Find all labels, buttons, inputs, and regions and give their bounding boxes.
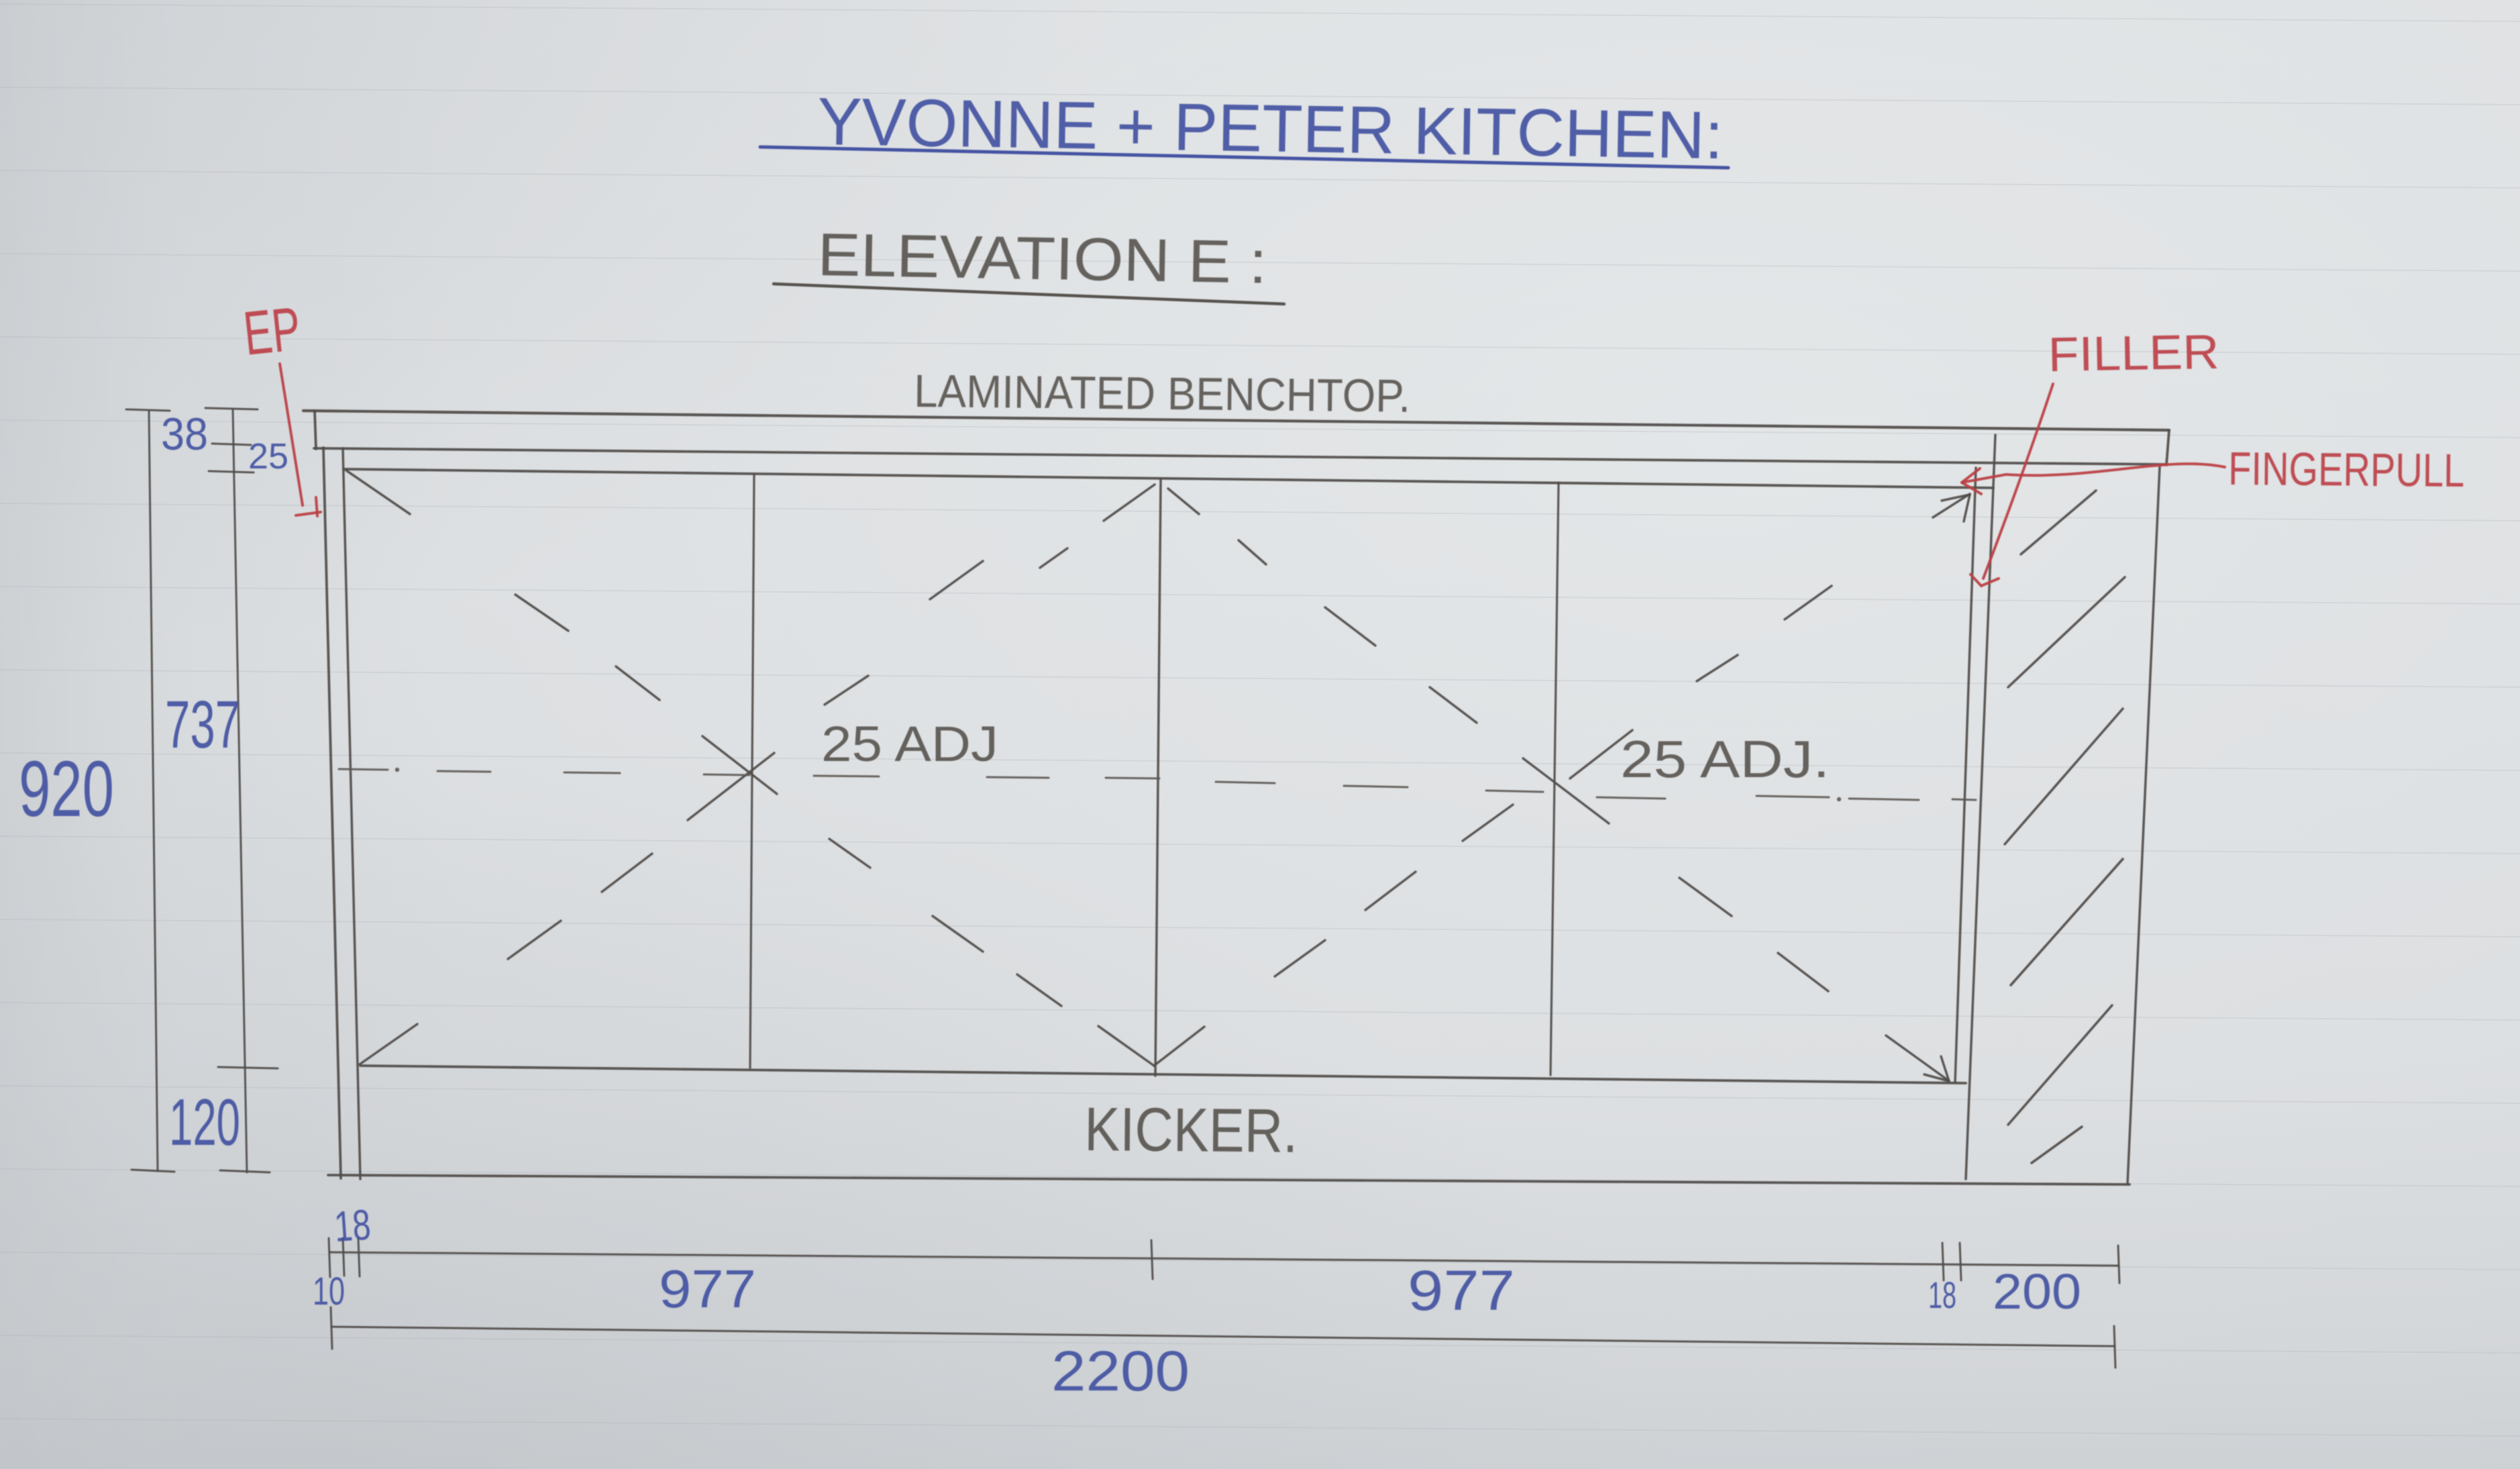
svg-text:EP: EP <box>240 295 303 368</box>
svg-text:FILLER: FILLER <box>2048 325 2219 382</box>
svg-text:737: 737 <box>165 687 240 762</box>
svg-text:YVONNE + PETER KITCHEN:: YVONNE + PETER KITCHEN: <box>817 84 1724 173</box>
svg-text:KICKER.: KICKER. <box>1084 1095 1298 1166</box>
svg-text:38: 38 <box>161 409 208 460</box>
svg-text:FINGERPULL: FINGERPULL <box>2228 442 2465 497</box>
svg-text:LAMINATED BENCHTOP.: LAMINATED BENCHTOP. <box>914 365 1411 422</box>
svg-text:10: 10 <box>313 1270 345 1313</box>
svg-text:120: 120 <box>169 1085 240 1159</box>
svg-text:977: 977 <box>1408 1259 1515 1322</box>
svg-text:18: 18 <box>1928 1274 1956 1316</box>
svg-text:25 ADJ: 25 ADJ <box>821 716 998 772</box>
svg-text:977: 977 <box>659 1259 756 1319</box>
svg-text:ELEVATION E :: ELEVATION E : <box>817 221 1268 297</box>
svg-text:18: 18 <box>333 1200 372 1251</box>
svg-text:920: 920 <box>19 745 114 833</box>
svg-text:25 ADJ.: 25 ADJ. <box>1620 729 1830 789</box>
svg-text:2200: 2200 <box>1051 1339 1190 1403</box>
svg-text:25: 25 <box>248 436 288 476</box>
svg-text:200: 200 <box>1993 1264 2081 1319</box>
